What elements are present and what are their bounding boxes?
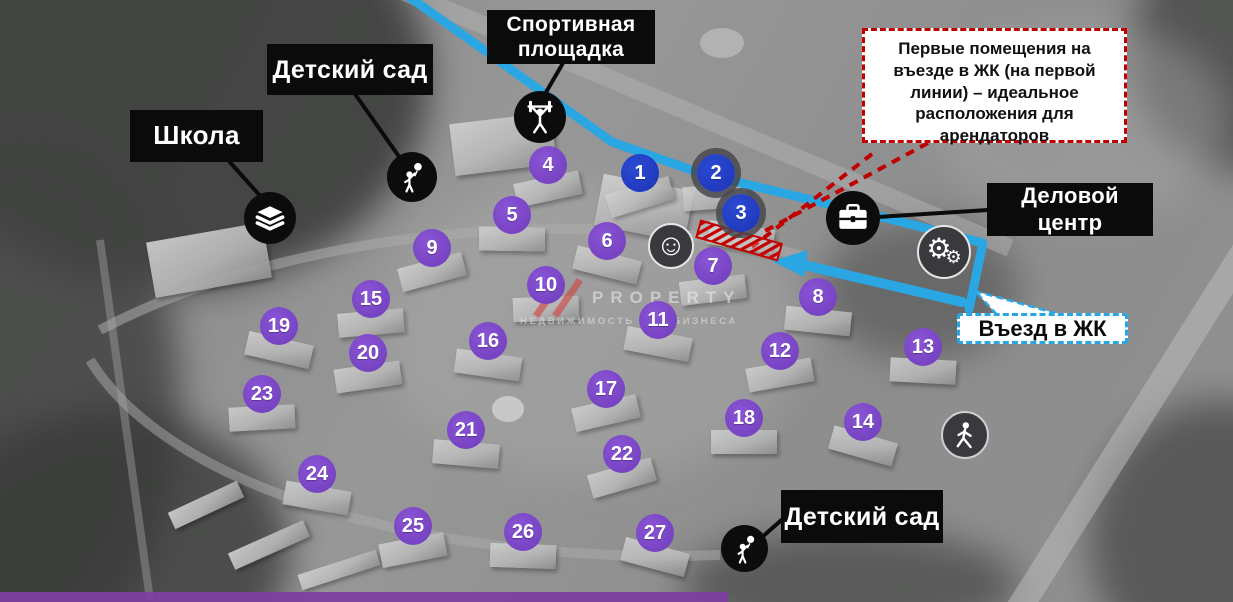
business-center-label: Деловой центр [987,183,1153,236]
sports-weightlifter-icon [514,91,566,143]
kindergarten-label-bottom: Детский сад [781,490,943,543]
school-books-icon [244,192,296,244]
annotation-box: Первые помещения на въезде в ЖК (на перв… [862,28,1127,143]
map-marker-2: 2 [697,154,735,192]
school-label: Школа [130,110,263,162]
map-marker-14: 14 [844,403,882,441]
kindergarten-child-balloon-icon-top [387,152,437,202]
gear-glyph: ⚙ [945,248,961,266]
kindergarten-label-top: Детский сад [267,44,433,95]
briefcase-icon [826,191,880,245]
map-marker-12: 12 [761,332,799,370]
map-marker-9: 9 [413,229,451,267]
map-marker-13: 13 [904,328,942,366]
map-marker-27: 27 [636,514,674,552]
map-marker-15: 15 [352,280,390,318]
map-marker-26: 26 [504,513,542,551]
map-marker-21: 21 [447,411,485,449]
map-marker-10: 10 [527,266,565,304]
map-marker-11: 11 [639,301,677,339]
bottom-purple-bar [0,592,728,602]
map-marker-25: 25 [394,507,432,545]
map-marker-7: 7 [694,247,732,285]
map-marker-1: 1 [621,154,659,192]
map-marker-4: 4 [529,146,567,184]
map-marker-3: 3 [722,194,760,232]
sports-ground-label: Спортивная площадка [487,10,655,64]
map-marker-18: 18 [725,399,763,437]
map-marker-19: 19 [260,307,298,345]
map-marker-23: 23 [243,375,281,413]
entrance-label: Въезд в ЖК [957,313,1128,344]
gears-icon: ⚙⚙ [917,225,971,279]
map-marker-8: 8 [799,278,837,316]
map-marker-17: 17 [587,370,625,408]
map-marker-22: 22 [603,435,641,473]
map-marker-16: 16 [469,322,507,360]
map-marker-24: 24 [298,455,336,493]
walking-person-icon [941,411,989,459]
masterplan-map: PROPERTY НЕДВИЖИМОСТЬ ДЛЯ БИЗНЕСА [0,0,1233,602]
smiley-face-icon: ☺ [648,223,694,269]
map-marker-20: 20 [349,334,387,372]
map-marker-6: 6 [588,222,626,260]
map-marker-5: 5 [493,196,531,234]
kindergarten-child-balloon-icon-bottom [721,525,768,572]
